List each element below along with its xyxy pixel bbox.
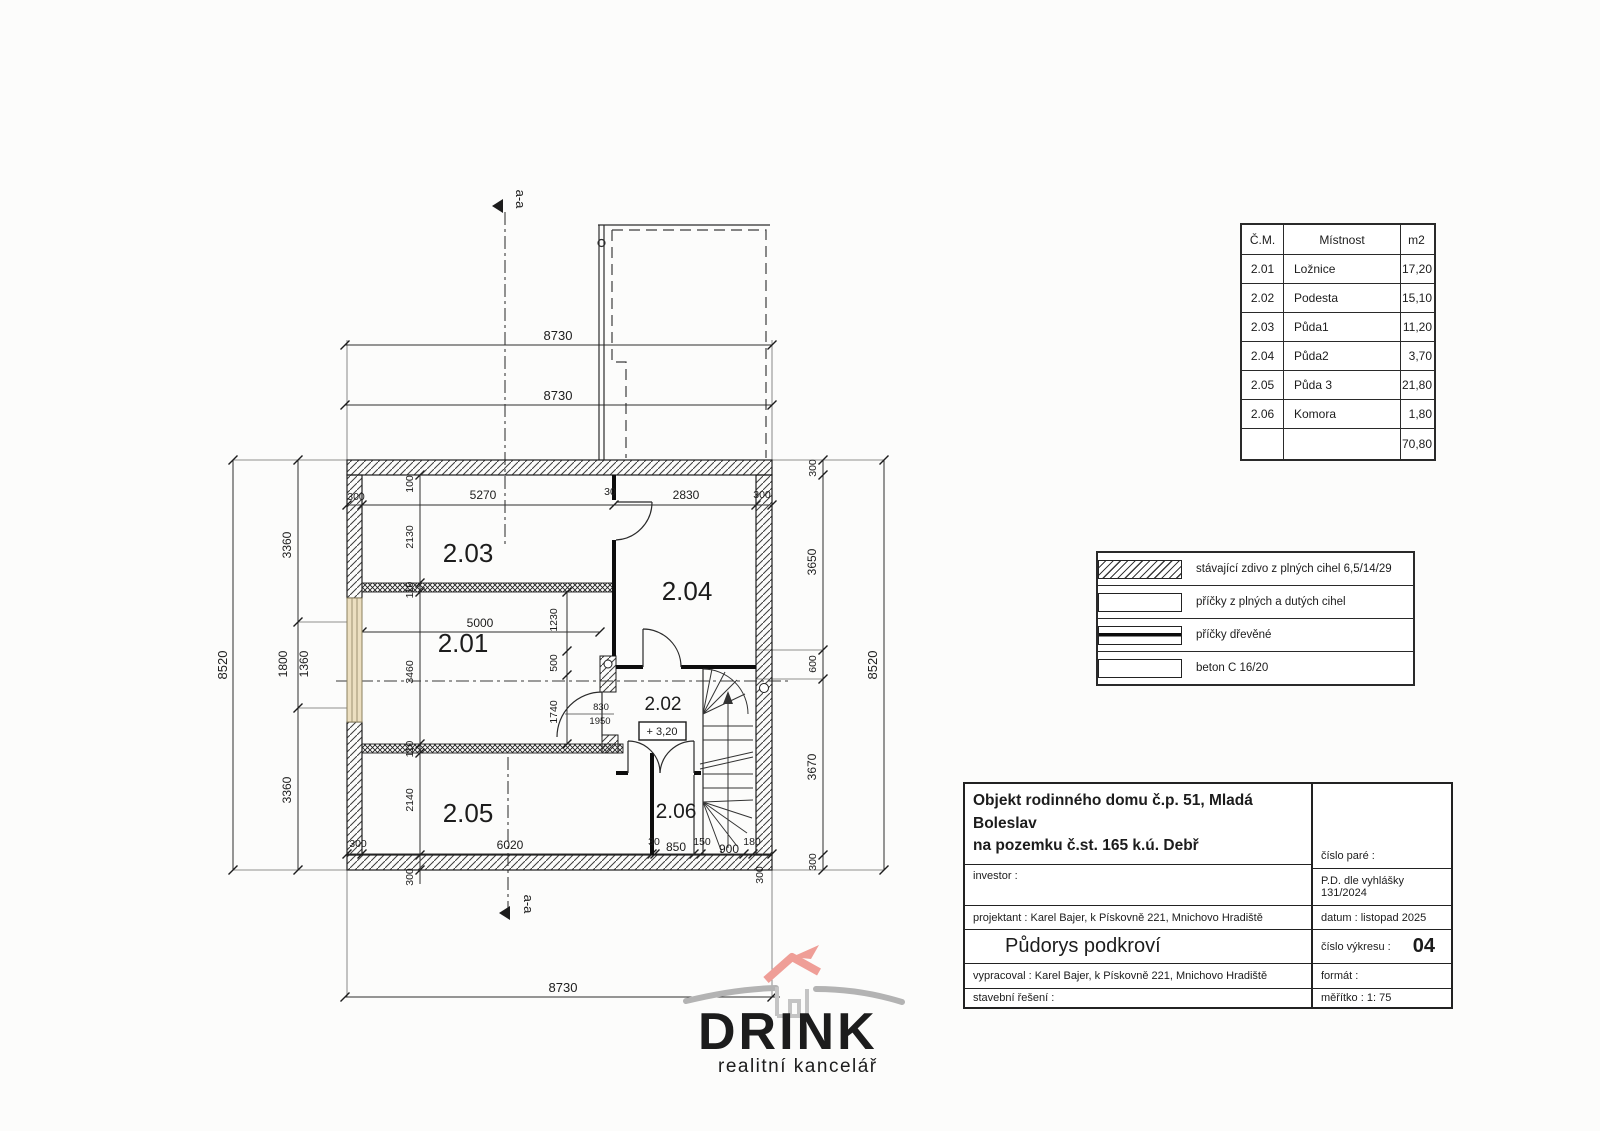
room-label-2-03: 2.03: [443, 538, 494, 568]
door-201-202: [557, 692, 602, 737]
room-label-2-06: 2.06: [656, 800, 697, 823]
dim-v-1740: 1740: [548, 700, 560, 724]
scanned-floor-plan-page: 8730 8730 8730 8520 8520 3360 1800 1360 …: [0, 0, 1600, 1131]
dim-int-300L: 300: [347, 491, 365, 503]
dim-right-300b: 300: [807, 853, 819, 871]
dim-v-110a: 110: [404, 581, 416, 598]
door-202-204: [643, 629, 681, 667]
dim-right-300a: 300: [807, 459, 819, 477]
window: [347, 598, 362, 722]
table-row: 2.01 Ložnice 17,20: [1242, 254, 1434, 283]
project-title: Objekt rodinného domu č.p. 51, Mladá Bol…: [965, 784, 1311, 864]
roof-outline-dashed: [612, 230, 766, 458]
dim-v-500: 500: [548, 654, 560, 672]
dim-int-30: 30: [604, 486, 616, 498]
legend-item: stávající zdivo z plných cihel 6,5/14/29: [1098, 553, 1413, 585]
materials-legend: stávající zdivo z plných cihel 6,5/14/29…: [1096, 551, 1415, 686]
dim-int-300R: 300: [753, 489, 771, 501]
room-table-header: Č.M. Místnost m2: [1242, 225, 1434, 254]
cislo-vykresu-field: číslo výkresu : 04: [1313, 929, 1451, 963]
room-label-2-04: 2.04: [662, 576, 713, 606]
total-area: 70,80: [1401, 437, 1434, 451]
room-label-2-05: 2.05: [443, 798, 494, 828]
dim-v-300: 300: [404, 868, 416, 886]
concrete-hatch-swatch: [1098, 659, 1182, 678]
room-boundary-lines: [694, 669, 703, 855]
dim-b-30: 30: [648, 836, 660, 848]
investor-field: investor :: [965, 864, 1311, 905]
dim-left-1800: 1800: [276, 650, 290, 677]
dim-int-5270: 5270: [470, 488, 497, 502]
flue-circle-right: [760, 684, 769, 693]
table-row: 2.05 Půda 3 21,80: [1242, 370, 1434, 399]
table-total-row: 70,80: [1242, 428, 1434, 459]
dim-b-150: 150: [693, 836, 711, 848]
section-arrow-bottom: [499, 906, 510, 920]
meritko-field: měřítko : 1: 75: [1313, 988, 1451, 1007]
door-size-830: 830: [593, 702, 609, 713]
room-label-2-02: 2.02: [645, 694, 682, 715]
drawing-title: Půdorys podkroví: [965, 929, 1311, 963]
vypracoval-field: vypracoval : Karel Bajer, k Pískovně 221…: [965, 963, 1311, 988]
dim-left-3360a: 3360: [280, 531, 294, 558]
dim-right-600: 600: [807, 655, 819, 673]
dim-top-8730-a: 8730: [544, 328, 573, 343]
room-label-2-01: 2.01: [438, 628, 489, 658]
format-field: formát :: [1313, 963, 1451, 988]
cislo-pare-field: číslo paré :: [1313, 784, 1451, 868]
table-row: 2.04 Půda2 3,70: [1242, 341, 1434, 370]
table-row: 2.06 Komora 1,80: [1242, 399, 1434, 428]
dim-right-3670: 3670: [805, 753, 819, 780]
dim-b-300R: 300: [754, 866, 766, 884]
legend-item: beton C 16/20: [1098, 651, 1413, 684]
dim-right-8520: 8520: [865, 651, 880, 680]
drink-logo: DRINK realitní kancelář: [680, 925, 910, 1080]
level-label: + 3,20: [647, 726, 678, 738]
stair-cut-line: [700, 752, 753, 769]
col-header-area: m2: [1401, 233, 1434, 247]
table-row: 2.03 Půda1 11,20: [1242, 312, 1434, 341]
dim-b-6020: 6020: [497, 838, 524, 852]
datum-field: datum : listopad 2025: [1313, 905, 1451, 929]
dim-v-2130: 2130: [404, 525, 416, 549]
dim-right-3650: 3650: [805, 548, 819, 575]
dim-b-300L: 300: [349, 838, 367, 850]
chimney-wall-above: [598, 225, 770, 460]
logo-wordmark: DRINK: [698, 1003, 878, 1061]
dim-v-3460: 3460: [404, 660, 416, 684]
section-label-bottom: a-a: [521, 895, 536, 915]
dim-top-8730-b: 8730: [544, 388, 573, 403]
room-table: Č.M. Místnost m2 2.01 Ložnice 17,20 2.02…: [1240, 223, 1436, 461]
wood-line-swatch: [1098, 626, 1182, 645]
table-row: 2.02 Podesta 15,10: [1242, 283, 1434, 312]
vyhlaska-field: P.D. dle vyhlášky 131/2024: [1313, 868, 1451, 905]
legend-item: příčky z plných a dutých cihel: [1098, 585, 1413, 618]
title-block: Objekt rodinného domu č.p. 51, Mladá Bol…: [963, 782, 1453, 1009]
dim-bottom-8730: 8730: [549, 980, 578, 995]
col-header-num: Č.M.: [1242, 225, 1284, 254]
door-203-204: [616, 502, 652, 540]
dim-v-2140: 2140: [404, 788, 416, 812]
section-label-top: a-a: [513, 190, 528, 210]
door-206-right-leaf: [660, 741, 694, 773]
stavebni-field: stavební řešení :: [965, 988, 1311, 1007]
drawing-number: 04: [1413, 935, 1443, 958]
wood-partitions: [614, 475, 756, 855]
projektant-field: projektant : Karel Bajer, k Pískovně 221…: [965, 905, 1311, 929]
dim-v-110b: 110: [404, 740, 416, 757]
interior-partitions: [362, 583, 623, 753]
dim-v-100: 100: [404, 475, 416, 493]
cross-hatch-swatch: [1098, 593, 1182, 612]
dim-v-1230: 1230: [548, 608, 560, 632]
dim-b-850: 850: [666, 840, 686, 854]
dim-int-2830: 2830: [673, 488, 700, 502]
dim-b-180: 180: [743, 836, 761, 848]
logo-subtitle: realitní kancelář: [718, 1056, 878, 1077]
section-arrow-top: [492, 199, 503, 213]
dim-left-3360b: 3360: [280, 776, 294, 803]
brick-hatch-swatch: [1098, 560, 1182, 579]
dim-b-900: 900: [719, 842, 739, 856]
legend-item: příčky dřevěné: [1098, 618, 1413, 651]
col-header-name: Místnost: [1284, 225, 1401, 254]
door-206-left-leaf: [628, 741, 660, 773]
dim-left-8520: 8520: [215, 651, 230, 680]
dim-left-1360: 1360: [297, 650, 311, 677]
flue-circle-left: [604, 660, 612, 668]
door-size-1950: 1950: [589, 716, 610, 727]
